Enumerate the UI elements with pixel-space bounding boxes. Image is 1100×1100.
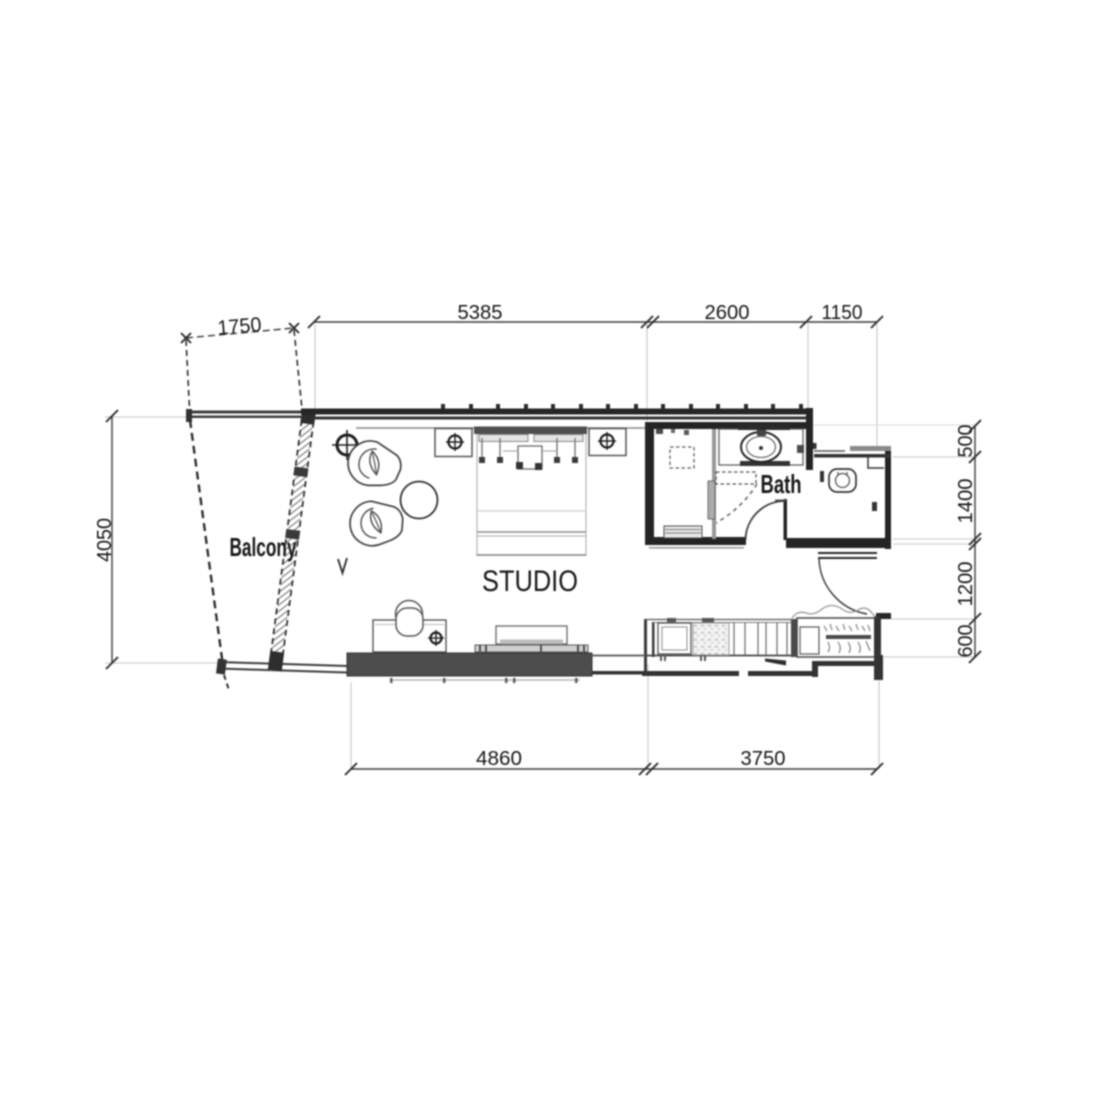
svg-text:Bath: Bath xyxy=(761,469,802,499)
svg-text:600: 600 xyxy=(954,625,977,658)
svg-text:1150: 1150 xyxy=(822,301,863,324)
svg-text:Balcony: Balcony xyxy=(230,532,297,562)
svg-text:1750: 1750 xyxy=(217,313,263,340)
svg-text:4860: 4860 xyxy=(476,747,522,770)
svg-text:500: 500 xyxy=(954,425,977,458)
svg-text:STUDIO: STUDIO xyxy=(482,565,578,598)
svg-text:3750: 3750 xyxy=(741,747,786,770)
svg-text:1200: 1200 xyxy=(954,562,977,607)
svg-text:1400: 1400 xyxy=(954,479,977,524)
svg-text:4050: 4050 xyxy=(93,518,116,562)
svg-text:2600: 2600 xyxy=(705,301,750,324)
svg-text:5385: 5385 xyxy=(458,301,503,324)
